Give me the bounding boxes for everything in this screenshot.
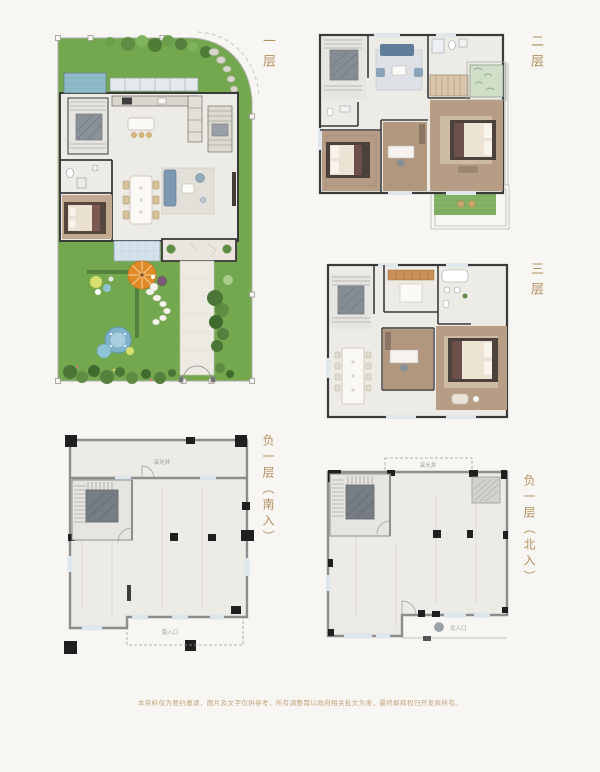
pillow — [69, 219, 76, 228]
sofa — [380, 44, 414, 56]
master-bedroom — [430, 100, 503, 191]
stool — [146, 132, 151, 137]
window-band — [110, 78, 198, 91]
staircase — [322, 35, 368, 99]
pillow — [331, 146, 339, 158]
desk-chair — [400, 364, 408, 372]
pillow — [69, 207, 76, 216]
floor-plan-basement-north: 采光井 — [326, 455, 511, 645]
master-bedroom — [436, 326, 507, 410]
stool — [139, 132, 144, 137]
light-well-label: 采光井 — [420, 461, 437, 469]
stool-white — [151, 275, 155, 279]
stool — [469, 201, 476, 208]
plant — [167, 245, 176, 254]
dining-table — [123, 176, 159, 224]
cabinets — [188, 96, 202, 142]
tv-cabinet — [232, 172, 236, 206]
kitchen-island — [128, 118, 154, 138]
pillow — [484, 343, 492, 357]
stool — [131, 132, 136, 137]
blanket — [92, 205, 100, 231]
blanket — [452, 341, 462, 379]
plant — [223, 245, 232, 254]
stool — [458, 201, 465, 208]
armchair — [414, 68, 423, 77]
coffee-table — [392, 66, 406, 75]
desk-chair — [397, 159, 405, 167]
coffee-table — [182, 184, 194, 193]
bookshelf — [419, 124, 425, 144]
staircase — [72, 480, 132, 542]
north-entrance-label: 北入口 — [450, 624, 467, 632]
desk — [388, 146, 414, 158]
light-well-dashed: 采光井 — [385, 458, 472, 472]
blanket — [454, 123, 464, 157]
pillow — [331, 161, 339, 173]
lounge-chair — [452, 394, 468, 404]
second-floor-label: 二层 — [530, 34, 543, 74]
house-first-floor — [60, 73, 238, 241]
planter-pot — [158, 277, 167, 286]
grate — [472, 477, 500, 503]
floor-plan-second-floor — [318, 28, 514, 240]
bookshelf — [385, 332, 391, 350]
disclaimer-text: 本资料仅为要约邀请，图片及文字仅供参考，所有调整需以政府相关批文为准，最终解释权… — [0, 697, 600, 707]
side-stair — [208, 106, 232, 152]
family-area — [376, 44, 423, 90]
desk — [390, 350, 418, 363]
planter-lightwell — [467, 62, 506, 100]
floor-plan-third-floor — [326, 262, 511, 422]
terrace-tiles — [114, 241, 160, 261]
pillow — [484, 361, 492, 375]
light-well-label: 采光井 — [154, 458, 171, 466]
basement-north-label: 负一层（北入） — [523, 474, 535, 586]
toilet — [443, 300, 449, 308]
first-floor-label: 一层 — [262, 34, 275, 74]
floor-plan-first-floor — [50, 28, 265, 393]
third-floor-label: 三层 — [530, 262, 543, 302]
roof-terrace — [434, 193, 496, 215]
entrance-column — [435, 623, 444, 632]
brochure-page: 一层 — [0, 0, 600, 772]
closet-island — [400, 284, 422, 302]
sink — [454, 287, 460, 293]
study — [383, 122, 427, 191]
basement-south-label: 负一层（南入） — [262, 434, 274, 546]
side-table — [473, 396, 479, 402]
armchair — [376, 68, 385, 77]
armchair — [196, 174, 205, 183]
first-floor-drawing — [50, 28, 265, 393]
pool-water-feature — [64, 73, 106, 93]
basement-south-drawing: 采光井 — [52, 428, 262, 665]
porch-step — [423, 636, 431, 641]
second-floor-drawing — [318, 28, 514, 240]
plant — [463, 294, 468, 299]
entry-terrace — [162, 239, 236, 261]
pillow — [484, 124, 492, 138]
closet — [430, 75, 468, 96]
bench — [458, 166, 478, 173]
study — [382, 328, 434, 390]
bathtub — [442, 270, 468, 282]
third-floor-drawing — [326, 262, 511, 422]
bedroom-left — [322, 131, 380, 191]
staircase — [330, 474, 390, 536]
sofa — [164, 170, 176, 206]
bedroom — [62, 195, 112, 239]
staircase — [330, 265, 374, 329]
pouf — [200, 197, 206, 203]
pillow — [484, 141, 492, 155]
sink — [444, 287, 450, 293]
blanket — [354, 145, 362, 175]
staircase — [68, 98, 108, 154]
garden-path — [180, 261, 214, 375]
basement-north-drawing: 采光井 — [326, 455, 511, 645]
south-entrance-label: 南入口 — [162, 628, 179, 636]
floor-plan-basement-south: 采光井 — [52, 428, 262, 665]
